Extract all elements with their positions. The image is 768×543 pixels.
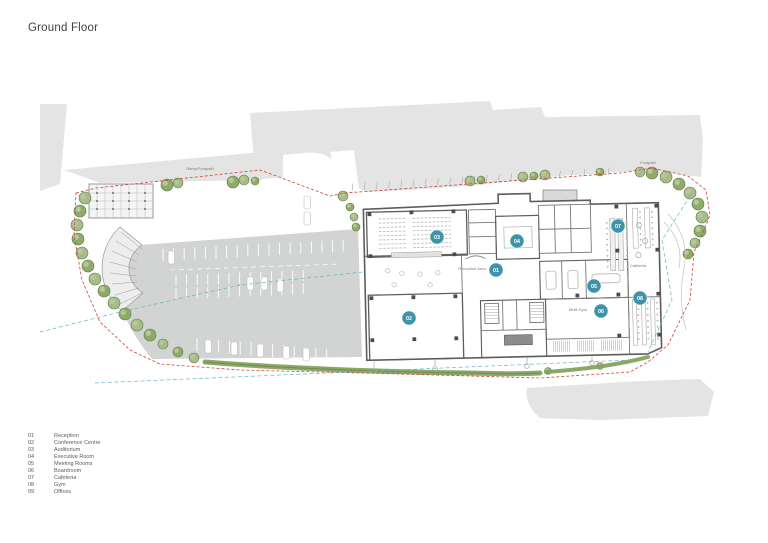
tree-icon [346,203,354,211]
legend-row: 04Executive Room [28,454,100,461]
legend-number: 05 [28,461,54,468]
car-icon [168,251,175,264]
car-icon [304,212,311,225]
legend-label: Auditorium [54,447,80,454]
room-marker: 02 [402,311,416,325]
legend-number: 01 [28,433,54,440]
legend-label: Reception [54,433,79,440]
legend-row: 03Auditorium [28,447,100,454]
room-marker: 07 [611,219,625,233]
building [363,191,662,361]
tree-icon [173,347,183,357]
legend-label: Conference Centre [54,440,100,447]
legend-number: 09 [28,489,54,496]
legend-number: 02 [28,440,54,447]
plan-label: Ramp/Footpath [186,166,214,171]
svg-text:04: 04 [514,239,520,245]
room-marker: 01 [489,263,503,277]
tree-icon [239,175,249,185]
room-marker: 08 [633,291,647,305]
room-marker: 06 [594,304,608,318]
room-marker: 04 [510,234,524,248]
svg-text:01: 01 [493,268,499,274]
tree-icon [692,198,704,210]
tree-icon [108,297,120,309]
legend-row: 06Boardroom [28,468,100,475]
plan-label: Multi Gym [569,307,588,312]
svg-text:03: 03 [434,235,440,241]
tree-icon [673,178,685,190]
plan-label: Reception Area [458,266,486,271]
legend-label: Gym [54,482,66,489]
tree-icon [694,225,706,237]
tree-icon [690,238,700,248]
car-icon [257,344,264,357]
legend-label: Executive Room [54,454,94,461]
legend-label: Boardroom [54,468,81,475]
tree-icon [74,205,86,217]
tree-icon [79,192,91,204]
room-marker: 03 [430,230,444,244]
legend-row: 09Offices [28,489,100,496]
tree-icon [251,177,259,185]
legend-label: Meeting Rooms [54,461,93,468]
tree-icon [684,187,696,199]
plan-label: Cafeteria [630,263,647,268]
legend-row: 08Gym [28,482,100,489]
tree-icon [98,285,110,297]
car-icon [261,277,268,290]
tree-icon [660,171,672,183]
room-legend: 01Reception02Conference Centre03Auditori… [28,433,100,496]
svg-text:05: 05 [591,284,597,290]
legend-number: 06 [28,468,54,475]
tree-icon [350,213,358,221]
tree-icon [89,273,101,285]
legend-label: Offices [54,489,71,496]
svg-text:08: 08 [637,296,643,302]
tree-icon [131,319,143,331]
canopy-structure [89,184,153,218]
tree-icon [352,223,360,231]
legend-number: 04 [28,454,54,461]
svg-text:06: 06 [598,309,604,315]
gym-equipment [553,340,621,353]
car-icon [205,340,212,353]
svg-text:02: 02 [406,316,412,322]
site-plan-drawing: Ramp/FootpathFootpathReception AreaCafet… [0,0,768,543]
plan-label: Footpath [640,160,656,165]
tree-icon [173,178,183,188]
legend-row: 01Reception [28,433,100,440]
tree-icon [144,329,156,341]
floor-plan-page: Ground Floor [0,0,768,543]
car-icon [283,346,290,359]
tree-icon [696,211,708,223]
tree-icon [158,339,168,349]
tree-icon [71,219,83,231]
car-icon [303,348,310,361]
legend-label: Cafeteria [54,475,76,482]
tree-icon [82,260,94,272]
legend-row: 07Cafeteria [28,475,100,482]
tree-icon [635,167,645,177]
tree-icon [683,249,693,259]
legend-row: 02Conference Centre [28,440,100,447]
room-marker: 05 [587,279,601,293]
legend-number: 08 [28,482,54,489]
tree-icon [189,353,199,363]
car-icon [231,342,238,355]
legend-number: 03 [28,447,54,454]
svg-text:07: 07 [615,224,621,230]
legend-row: 05Meeting Rooms [28,461,100,468]
tree-icon [227,176,239,188]
car-icon [304,196,311,209]
legend-number: 07 [28,475,54,482]
